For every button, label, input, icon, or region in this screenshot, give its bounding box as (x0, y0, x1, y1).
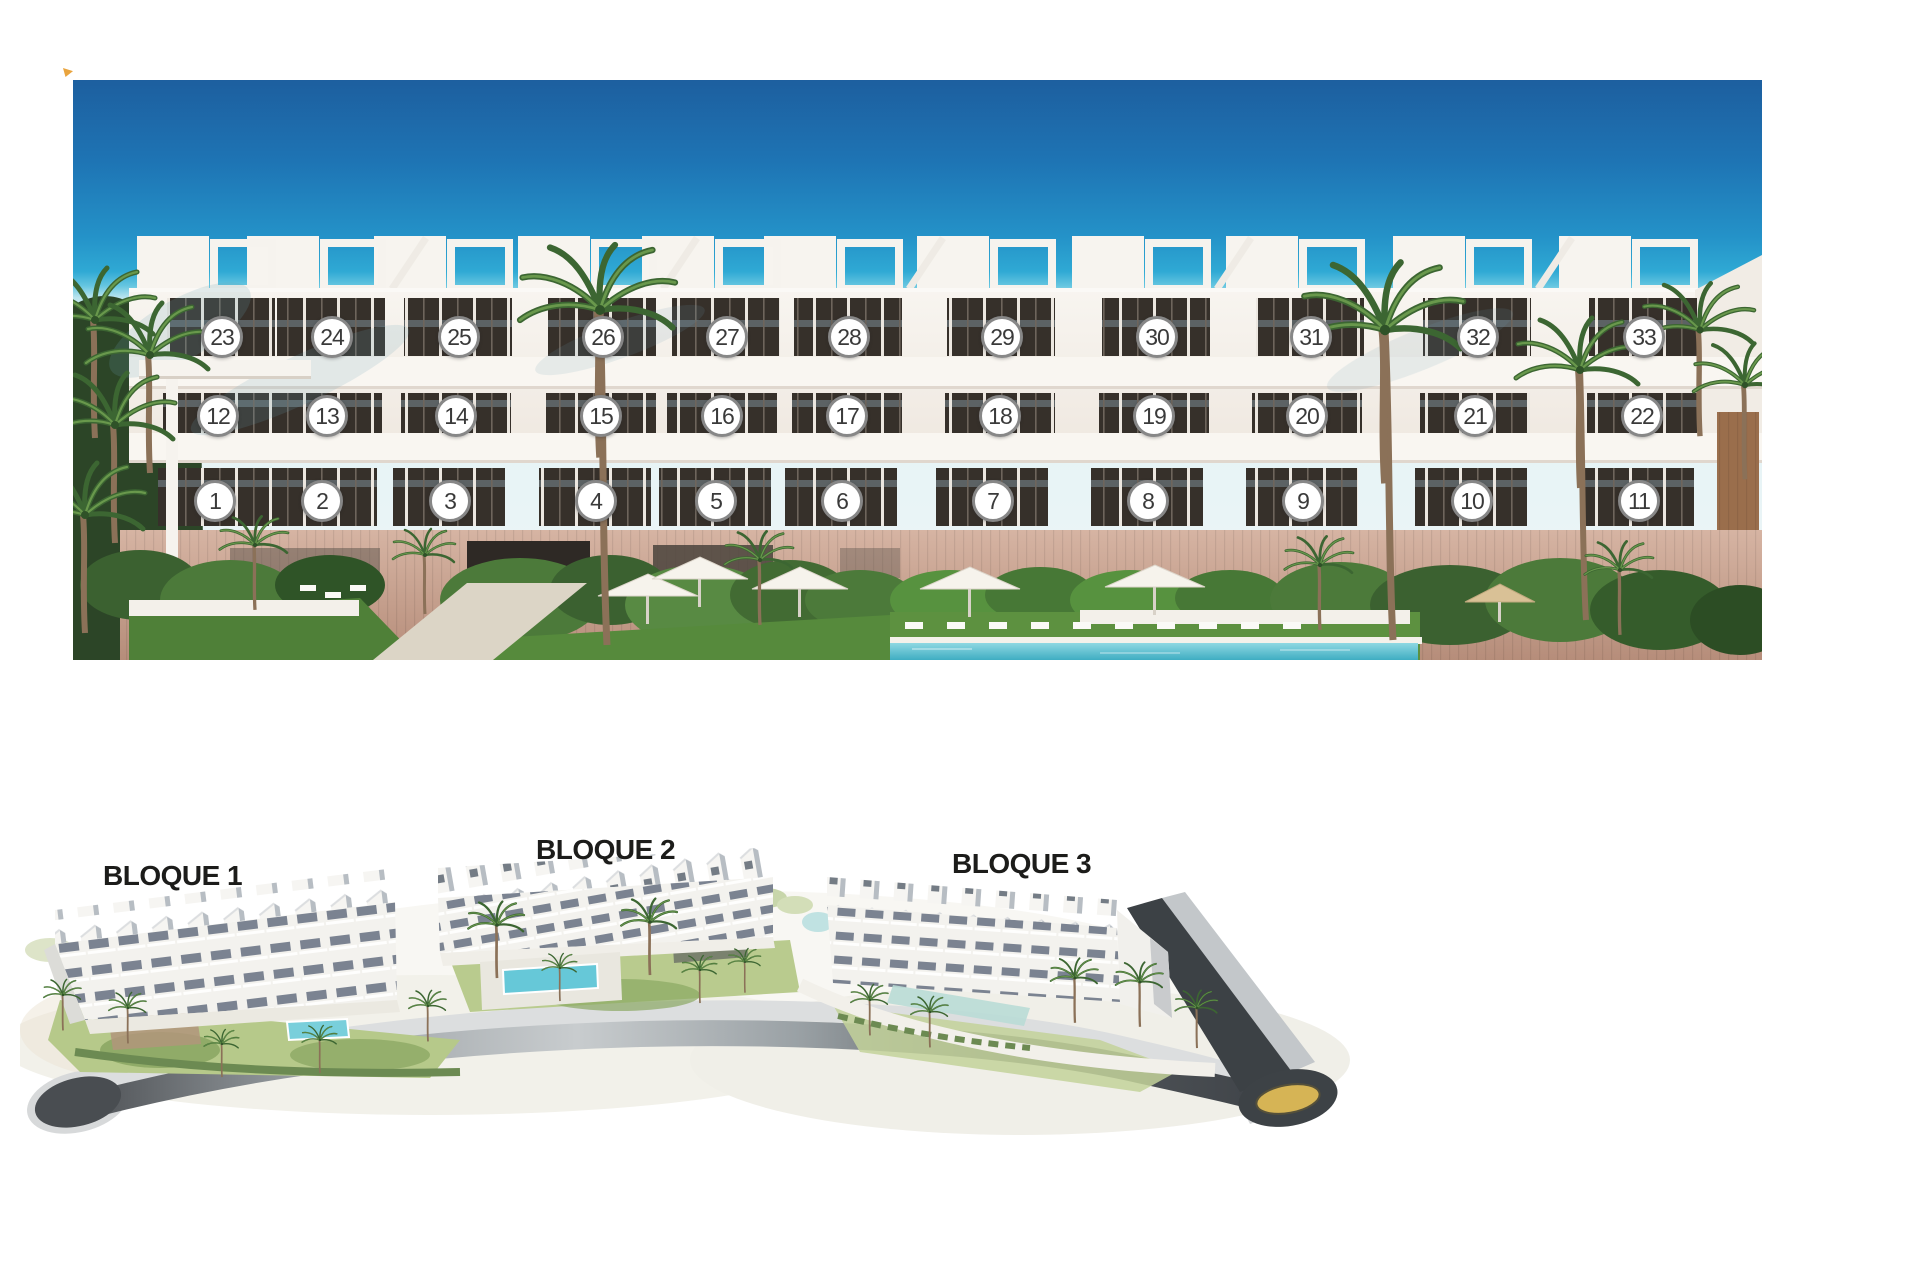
unit-badge-27[interactable]: 27 (706, 316, 748, 358)
corner-artifact (63, 68, 73, 77)
unit-badge-33[interactable]: 33 (1623, 316, 1665, 358)
unit-badge-17[interactable]: 17 (826, 395, 868, 437)
unit-badge-20[interactable]: 20 (1286, 395, 1328, 437)
unit-badge-19[interactable]: 19 (1133, 395, 1175, 437)
unit-badge-11[interactable]: 11 (1618, 480, 1660, 522)
front-elevation-illustration (73, 80, 1762, 660)
unit-badge-2[interactable]: 2 (301, 480, 343, 522)
unit-badge-10[interactable]: 10 (1451, 480, 1493, 522)
unit-badge-12[interactable]: 12 (197, 395, 239, 437)
unit-badge-7[interactable]: 7 (972, 480, 1014, 522)
unit-badge-3[interactable]: 3 (429, 480, 471, 522)
unit-badge-30[interactable]: 30 (1136, 316, 1178, 358)
unit-badge-26[interactable]: 26 (582, 316, 624, 358)
unit-badge-6[interactable]: 6 (821, 480, 863, 522)
unit-badge-23[interactable]: 23 (201, 316, 243, 358)
unit-badge-9[interactable]: 9 (1282, 480, 1324, 522)
unit-badge-18[interactable]: 18 (979, 395, 1021, 437)
unit-badge-25[interactable]: 25 (438, 316, 480, 358)
unit-badge-15[interactable]: 15 (580, 395, 622, 437)
page: 2324252627282930313233121314151617181920… (0, 0, 1920, 1280)
unit-badge-22[interactable]: 22 (1621, 395, 1663, 437)
site-plan-illustration (20, 838, 1360, 1235)
unit-badge-32[interactable]: 32 (1457, 316, 1499, 358)
unit-badge-24[interactable]: 24 (311, 316, 353, 358)
unit-badge-5[interactable]: 5 (695, 480, 737, 522)
unit-badge-13[interactable]: 13 (306, 395, 348, 437)
site-plan-render (20, 838, 1360, 1235)
site-plan-block-label-1: BLOQUE 1 (103, 862, 242, 890)
block-2-pool (503, 964, 598, 994)
unit-badge-31[interactable]: 31 (1290, 316, 1332, 358)
floor-slab-lower (129, 433, 1762, 463)
swimming-pool (890, 643, 1418, 660)
unit-badge-16[interactable]: 16 (701, 395, 743, 437)
unit-badge-28[interactable]: 28 (828, 316, 870, 358)
site-plan-block-label-3: BLOQUE 3 (952, 850, 1091, 878)
site-plan-block-label-2: BLOQUE 2 (536, 836, 675, 864)
pool-coping (890, 637, 1422, 644)
front-elevation-render (73, 80, 1762, 660)
unit-badge-8[interactable]: 8 (1127, 480, 1169, 522)
unit-badge-14[interactable]: 14 (435, 395, 477, 437)
unit-badge-21[interactable]: 21 (1454, 395, 1496, 437)
unit-badge-1[interactable]: 1 (194, 480, 236, 522)
planter-wall (129, 600, 359, 616)
unit-badge-4[interactable]: 4 (575, 480, 617, 522)
unit-badge-29[interactable]: 29 (981, 316, 1023, 358)
